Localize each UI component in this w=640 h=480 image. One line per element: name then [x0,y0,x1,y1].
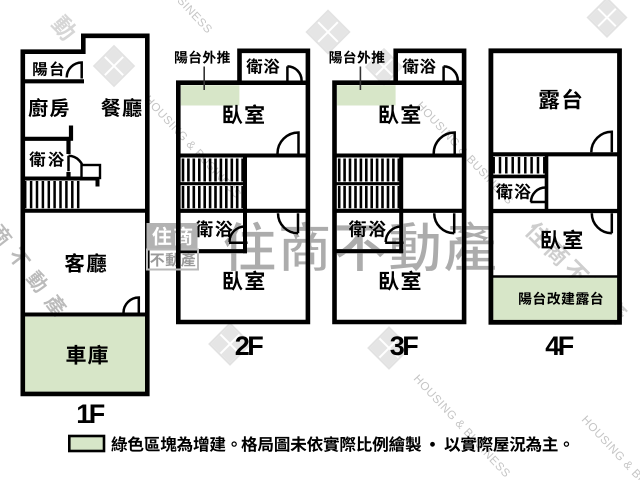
svg-text:2F: 2F [235,331,264,361]
svg-text:4F: 4F [545,331,574,361]
svg-text:1F: 1F [76,399,105,429]
svg-text:3F: 3F [390,331,419,361]
